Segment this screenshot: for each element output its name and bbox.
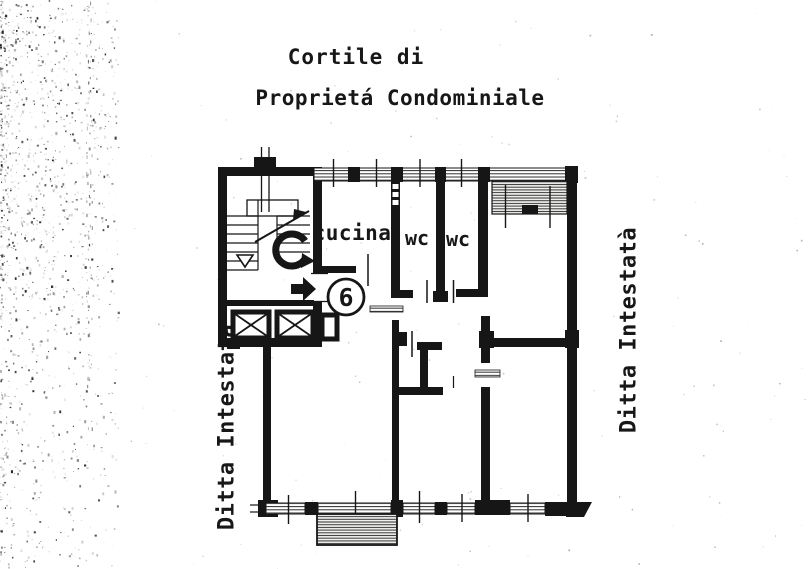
right-outer-wall <box>565 167 579 514</box>
left-owner-label: Ditta Intestata <box>215 324 240 530</box>
duct-bump <box>322 315 337 339</box>
kitchen-label: cucina <box>313 221 392 245</box>
title-block: Cortile di Proprietá Condominiale <box>255 45 544 110</box>
floorplan-drawing: Cortile di Proprietá Condominiale Ditta … <box>0 0 810 569</box>
unit-number: 6 <box>338 283 353 312</box>
unit-number-badge: 6 <box>328 279 364 315</box>
balcony-bottom <box>317 514 397 545</box>
title-line2: Proprietá Condominiale <box>255 86 544 110</box>
title-line1: Cortile di <box>288 45 424 69</box>
left-outer-wall <box>258 347 278 517</box>
elevator-shaft-right <box>277 312 313 338</box>
bottom-facade-wall <box>250 491 592 538</box>
wc2-label: wc <box>446 227 470 251</box>
stair-direction-c-mark <box>276 234 315 268</box>
elevator-shaft-left <box>233 312 269 338</box>
stair-landing <box>247 200 298 216</box>
wc1-label: wc <box>405 226 429 250</box>
scanned-floorplan-page: Cortile di Proprietá Condominiale Ditta … <box>0 0 810 569</box>
right-owner-label: Ditta Intestatà <box>617 227 642 433</box>
balcony-top-right <box>492 181 567 228</box>
